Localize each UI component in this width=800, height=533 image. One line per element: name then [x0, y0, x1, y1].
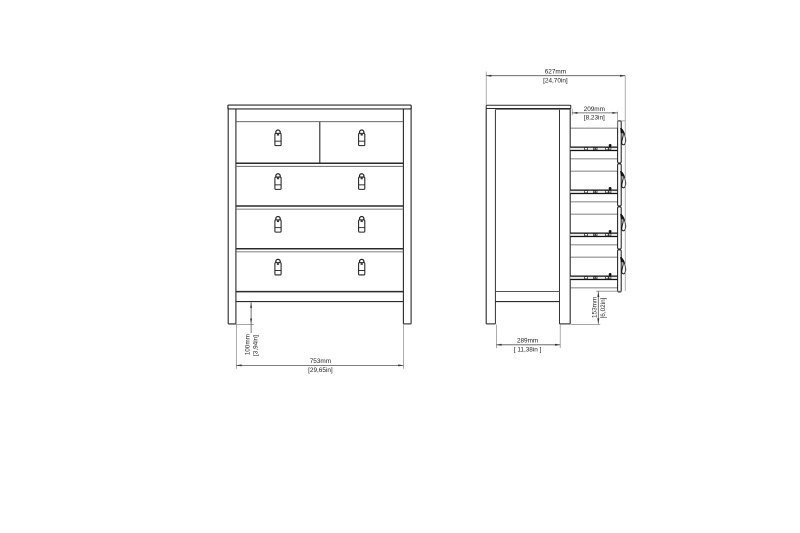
svg-text:[29,65in]: [29,65in]	[308, 367, 333, 374]
svg-text:[6,02in]: [6,02in]	[600, 297, 607, 318]
svg-text:153mm: 153mm	[592, 297, 599, 318]
svg-text:[ 11,38in ]: [ 11,38in ]	[514, 346, 542, 353]
svg-text:[3,94in]: [3,94in]	[253, 335, 260, 356]
svg-text:209mm: 209mm	[584, 106, 605, 113]
svg-text:[24,70in]: [24,70in]	[543, 78, 568, 85]
svg-text:[8,23in]: [8,23in]	[584, 115, 605, 122]
svg-text:753mm: 753mm	[310, 358, 331, 365]
svg-text:289mm: 289mm	[517, 338, 538, 345]
svg-text:100mm: 100mm	[244, 334, 251, 355]
svg-text:627mm: 627mm	[545, 69, 566, 76]
